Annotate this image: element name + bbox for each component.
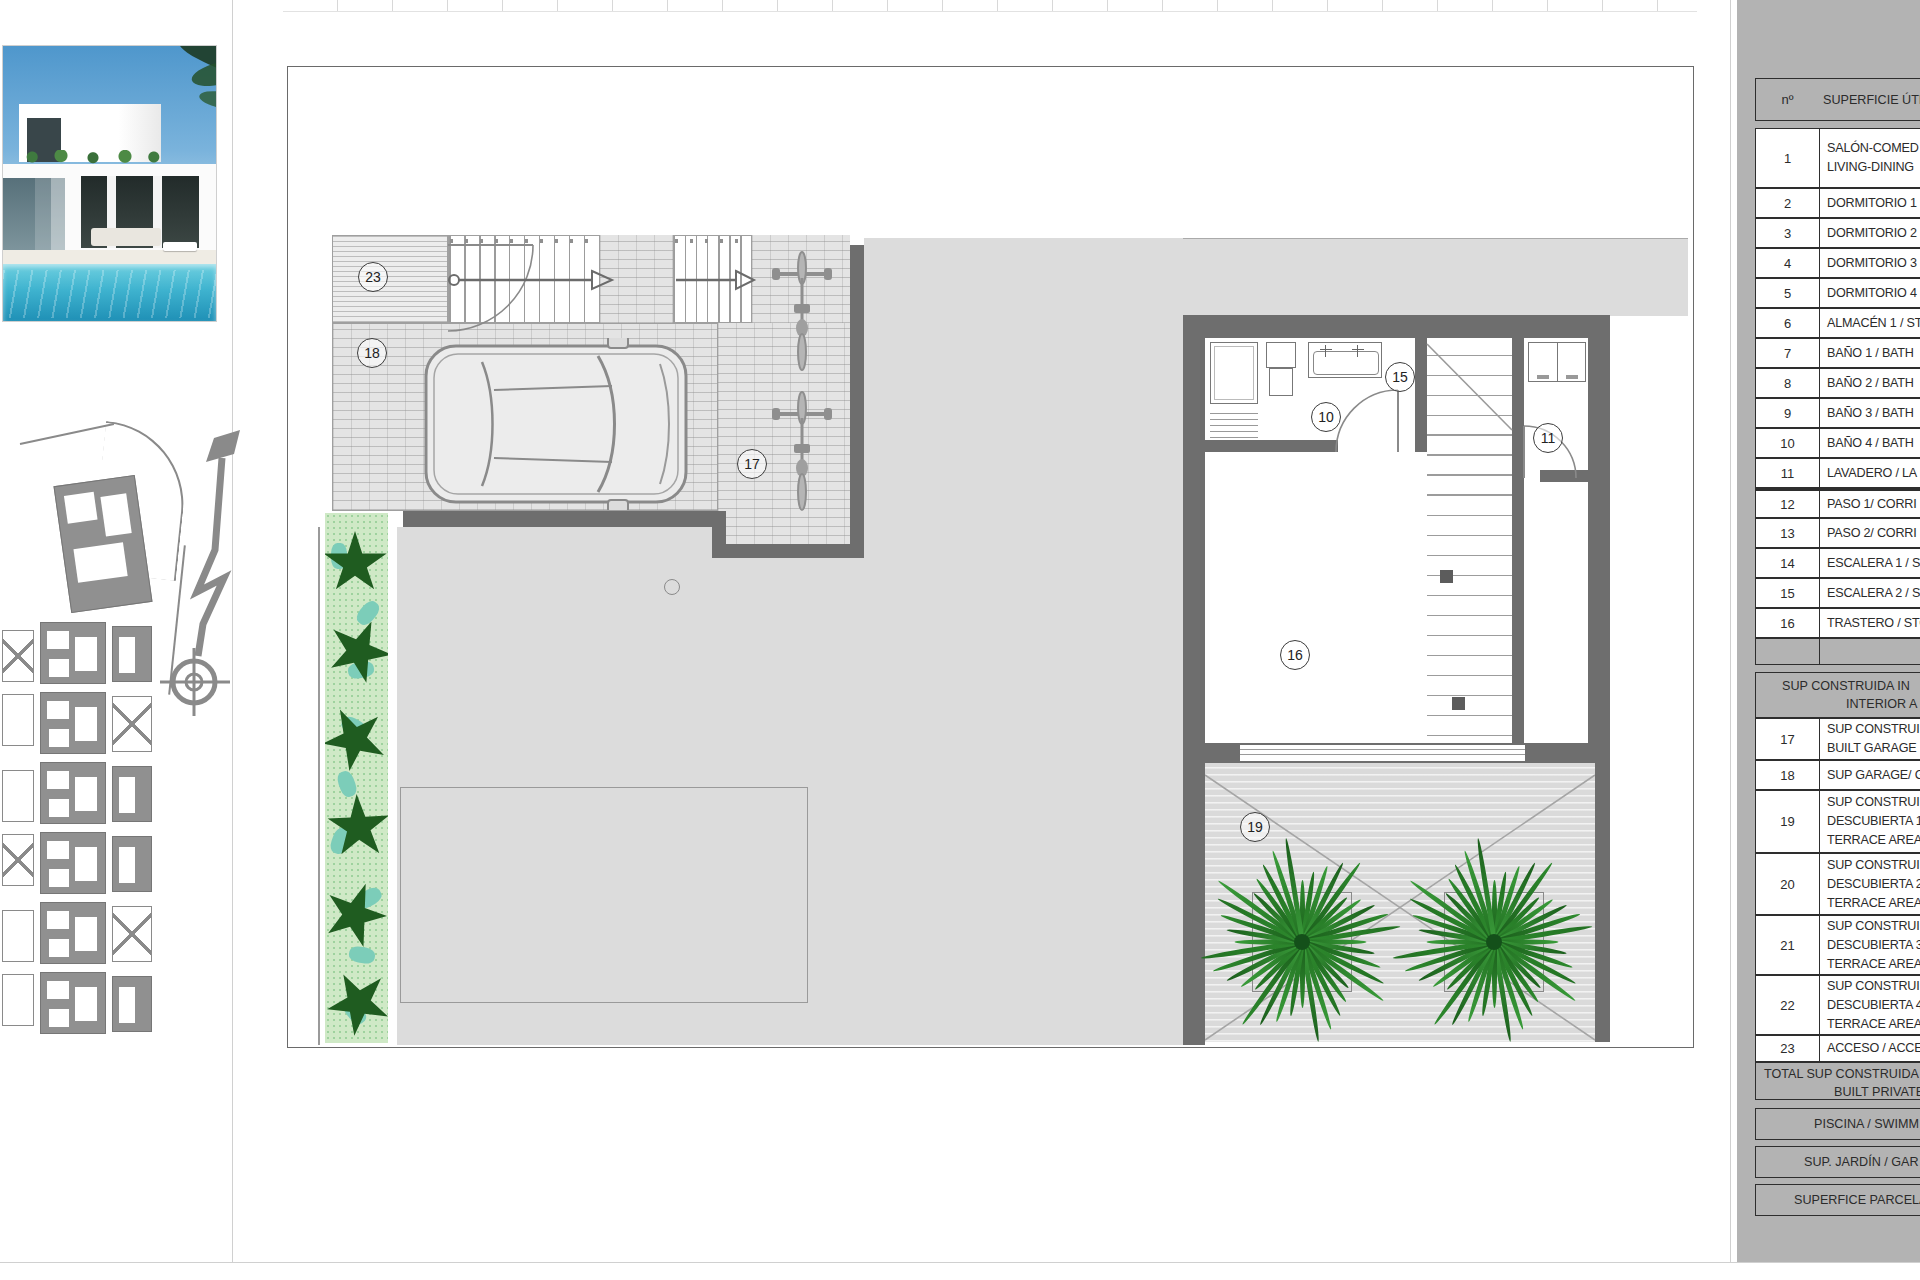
site-unit-cluster	[0, 620, 160, 1037]
table-row: 11LAVADERO / LA	[1755, 458, 1920, 488]
villa-photo	[2, 45, 217, 322]
drawing-sheet: 23 18 17 10 15 11 16 19 nº SUPERFICIE ÚT…	[0, 0, 1920, 1280]
room-tag-19: 19	[1240, 812, 1270, 842]
table-row: 6ALMACÉN 1 / ST	[1755, 308, 1920, 338]
site-plan	[0, 425, 232, 1037]
table-row: 8BAÑO 2 / BATH	[1755, 368, 1920, 398]
table-row: 13PASO 2/ CORRI	[1755, 518, 1920, 548]
room-tag-11: 11	[1533, 423, 1563, 453]
table-row: 22SUP CONSTRUIDESCUBIERTA 4TERRACE AREA	[1755, 975, 1920, 1035]
table-row: 1SALÓN-COMEDLIVING-DINING	[1755, 128, 1920, 188]
room-tag-17: 17	[737, 449, 767, 479]
table-header: nº SUPERFICIE ÚTI	[1755, 78, 1920, 121]
garden-row: SUP. JARDÍN / GAR	[1755, 1146, 1920, 1178]
table-row: 15ESCALERA 2 / ST	[1755, 578, 1920, 608]
built-area-section-header: SUP CONSTRUIDA IN INTERIOR A	[1755, 672, 1920, 718]
lounger	[163, 242, 197, 251]
room-tag-15: 15	[1385, 362, 1415, 392]
table-row: 20SUP CONSTRUIDESCUBIERTA 2TERRACE AREA	[1755, 853, 1920, 915]
table-row: 14ESCALERA 1 / ST	[1755, 548, 1920, 578]
north-arrow-icon	[160, 430, 240, 720]
room-tag-18: 18	[357, 338, 387, 368]
parcel-row: SUPERFICE PARCELA	[1755, 1184, 1920, 1216]
plan-linework	[283, 66, 1697, 1050]
room-tag-10: 10	[1311, 402, 1341, 432]
room-tag-16: 16	[1280, 640, 1310, 670]
villa-glass-wall	[3, 178, 65, 250]
table-row: 23ACCESO / ACCE	[1755, 1035, 1920, 1062]
table-row: 21SUP CONSTRUIDESCUBIERTA 3TERRACE AREA	[1755, 915, 1920, 975]
outdoor-sofa	[91, 228, 161, 246]
site-unit-block	[53, 475, 152, 613]
table-row: 12PASO 1/ CORRI	[1755, 488, 1920, 518]
table-row: 7BAÑO 1 / BATH	[1755, 338, 1920, 368]
table-row: 10BAÑO 4 / BATH	[1755, 428, 1920, 458]
top-tick-strip	[283, 0, 1697, 12]
pool-row: PISCINA / SWIMM	[1755, 1108, 1920, 1140]
table-row-empty	[1755, 638, 1920, 665]
table-row: 19SUP CONSTRUIDESCUBIERTA 1TERRACE AREA	[1755, 790, 1920, 853]
plot-boundary-line	[20, 423, 114, 445]
sheet-divider-bottom	[0, 1262, 1920, 1263]
table-row: 2DORMITORIO 1	[1755, 188, 1920, 218]
table-row: 5DORMITORIO 4	[1755, 278, 1920, 308]
room-tag-23: 23	[358, 262, 388, 292]
total-built-row: TOTAL SUP CONSTRUIDA BUILT PRIVATE	[1755, 1062, 1920, 1100]
sheet-divider-right	[1730, 0, 1731, 1262]
pool-ripples	[3, 270, 216, 318]
table-row: 3DORMITORIO 2	[1755, 218, 1920, 248]
table-row: 16TRASTERO / STO	[1755, 608, 1920, 638]
table-header-desc: SUPERFICIE ÚTI	[1819, 91, 1920, 109]
table-row: 18SUP GARAGE/ G	[1755, 760, 1920, 790]
terrace-plants	[13, 150, 173, 164]
table-row: 9BAÑO 3 / BATH	[1755, 398, 1920, 428]
table-row: 4DORMITORIO 3	[1755, 248, 1920, 278]
palm-frond-icon	[198, 88, 217, 112]
table-header-num: nº	[1756, 91, 1819, 109]
table-row: 17SUP CONSTRUIBUILT GARAGE	[1755, 718, 1920, 760]
